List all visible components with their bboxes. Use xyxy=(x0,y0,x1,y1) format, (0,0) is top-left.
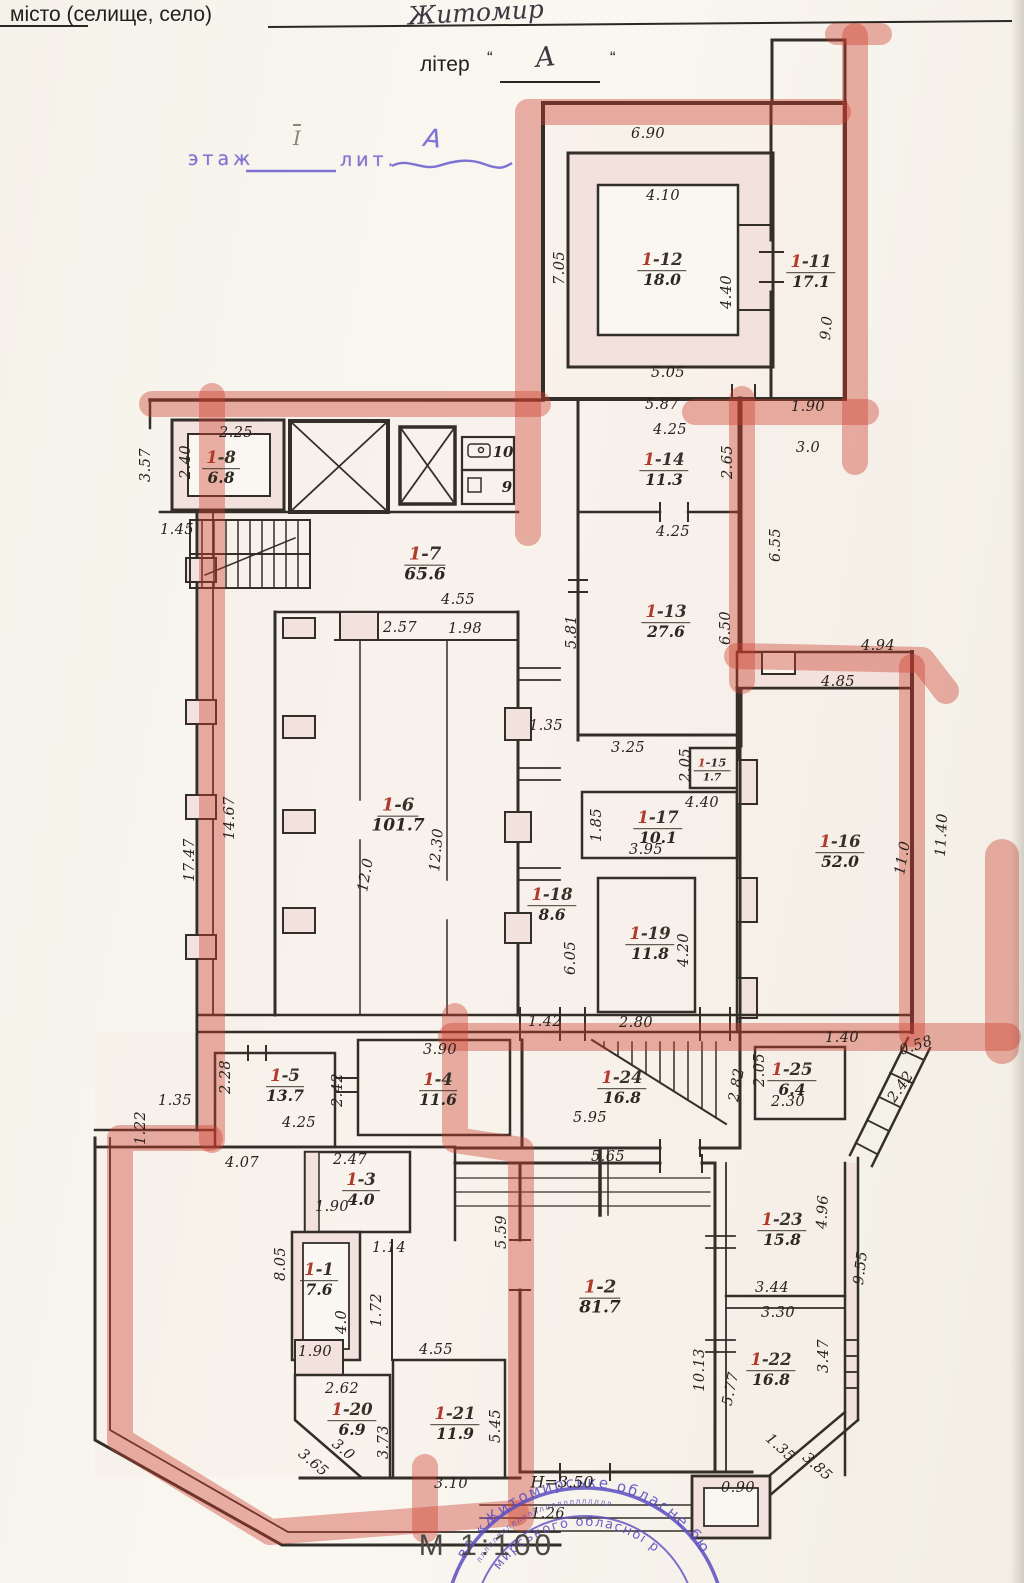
dim-label: 1.40 xyxy=(825,1030,859,1046)
dim-label: 10.13 xyxy=(692,1348,708,1392)
dim-label: 4.55 xyxy=(441,592,475,608)
liter-quote-open: “ xyxy=(487,48,493,68)
room-label-1-18: 1-188.6 xyxy=(527,887,576,923)
dim-label: 6.90 xyxy=(631,126,665,142)
dim-label: 4.85 xyxy=(821,674,855,690)
room-label-1-4: 1-411.6 xyxy=(419,1072,457,1108)
room-label-1-6: 1-6101.7 xyxy=(371,797,424,836)
room-label-1-14: 1-1411.3 xyxy=(639,452,688,488)
dim-label: 1.98 xyxy=(448,621,482,637)
dim-label: 2.62 xyxy=(325,1381,359,1397)
room-label-1-12: 1-1218.0 xyxy=(637,252,686,288)
dim-label: 2.30 xyxy=(771,1094,805,1110)
corner-stair-hatch xyxy=(850,1038,930,1166)
dim-label: 8.05 xyxy=(273,1247,289,1281)
dim-label: 4.20 xyxy=(676,933,692,967)
room-label-1-2: 1-281.7 xyxy=(579,1279,620,1318)
dim-label: 1.90 xyxy=(315,1199,349,1215)
room-label-1-23: 1-2315.8 xyxy=(757,1212,806,1248)
room-label-1-16: 1-1652.0 xyxy=(815,834,864,870)
room-label-1-24: 1-2416.8 xyxy=(597,1070,646,1106)
room-label-1-7: 1-765.6 xyxy=(404,546,445,585)
floor-stamp-label: этаж xyxy=(188,148,254,170)
dim-label: 4.55 xyxy=(419,1342,453,1358)
form-field-city-label: місто (селище, село) xyxy=(10,3,212,27)
dim-label: 3.95 xyxy=(629,842,663,858)
liter-label: літер xyxy=(420,53,470,77)
dim-label: 1.35 xyxy=(529,718,563,734)
liter-quote-close: “ xyxy=(610,48,616,68)
dim-label: 3.25 xyxy=(611,740,645,756)
dim-label: 4.40 xyxy=(685,795,719,811)
dim-label: 5.05 xyxy=(651,365,685,381)
room-label-1-25: 1-256.4 xyxy=(767,1062,816,1098)
cell-label-10: 10 xyxy=(493,443,514,461)
room-label-1-15: 1-151.7 xyxy=(694,753,731,782)
dim-label: 4.25 xyxy=(656,524,690,540)
dim-label: 1.35 xyxy=(158,1093,192,1109)
lit-stamp-label: лит. xyxy=(340,149,398,171)
dim-label: 6.50 xyxy=(718,611,734,645)
room-label-1-20: 1-206.9 xyxy=(327,1402,376,1438)
dim-label: 6.55 xyxy=(768,528,784,562)
room-label-1-8: 1-86.8 xyxy=(202,450,240,486)
scan-edge-shadow xyxy=(1010,0,1024,1583)
dim-label: 3.44 xyxy=(755,1280,789,1296)
dim-label: 5.95 xyxy=(573,1110,607,1126)
dim-label: 1.90 xyxy=(298,1344,332,1360)
dim-label: 1.90 xyxy=(791,399,825,415)
room-label-1-1: 1-17.6 xyxy=(300,1262,338,1298)
dim-label: 5.45 xyxy=(488,1409,504,1443)
dim-label: 4.10 xyxy=(646,188,680,204)
dim-label: 6.05 xyxy=(563,941,579,975)
dim-label: 3.90 xyxy=(423,1042,457,1058)
dim-label: 3.47 xyxy=(816,1339,832,1373)
dim-label: 1.85 xyxy=(589,808,605,842)
dim-label: 2.80 xyxy=(619,1015,653,1031)
room-label-1-17: 1-1710.1 xyxy=(633,810,682,846)
room-label-1-13: 1-1327.6 xyxy=(641,604,690,640)
scale-label: М 1:100 xyxy=(419,1529,555,1563)
scanned-floorplan-page: во «Житомирське обласне бю ллллллллллллл… xyxy=(0,0,1024,1583)
dim-label: 1.22 xyxy=(133,1111,149,1145)
dim-label: 4.96 xyxy=(814,1195,832,1230)
dim-label: 2.25 xyxy=(219,425,253,441)
room-label-1-22: 1-2216.8 xyxy=(746,1352,795,1388)
dim-label: 4.0 xyxy=(334,1310,350,1334)
dim-label: 7.05 xyxy=(552,251,568,285)
dim-label: 1.45 xyxy=(160,522,194,538)
dim-label: 14.67 xyxy=(222,796,238,840)
dim-label: 1.14 xyxy=(372,1240,406,1256)
room-label-1-5: 1-513.7 xyxy=(266,1068,304,1104)
dim-label: 0.90 xyxy=(721,1480,755,1496)
dim-label: 11.40 xyxy=(933,813,951,857)
dim-label: 2.57 xyxy=(383,620,417,636)
dim-label: 1.26 xyxy=(531,1506,565,1522)
dim-label: 2.05 xyxy=(752,1053,768,1087)
dim-label: 5.81 xyxy=(564,615,580,649)
dim-label: 4.25 xyxy=(282,1115,316,1131)
dim-label: 2.40 xyxy=(178,445,194,479)
dim-label: 2.47 xyxy=(333,1152,367,1168)
floor-number-handwritten: І xyxy=(293,126,301,150)
dim-label: 2.05 xyxy=(678,748,694,782)
dim-label: 3.57 xyxy=(138,448,154,482)
room-label-1-19: 1-1911.8 xyxy=(625,926,674,962)
lit-value-handwritten: А xyxy=(423,123,447,154)
dim-label: 4.25 xyxy=(653,422,687,438)
liter-handwritten: А xyxy=(533,41,557,74)
dim-label: 3.10 xyxy=(434,1476,468,1492)
dim-label: 4.07 xyxy=(225,1155,259,1171)
dim-label: 4.94 xyxy=(861,638,895,654)
height-note: Н=3.50 xyxy=(531,1473,594,1492)
dim-label: 1.72 xyxy=(369,1293,385,1327)
dim-label: 3.73 xyxy=(376,1425,392,1459)
dim-label: 3.0 xyxy=(796,440,820,456)
dim-label: 5.65 xyxy=(591,1149,625,1165)
room-label-1-21: 1-2111.9 xyxy=(430,1406,479,1442)
dim-label: 3.30 xyxy=(761,1305,795,1321)
dim-label: 2.42 xyxy=(330,1073,346,1107)
cell-label-9: 9 xyxy=(502,478,512,496)
dim-label: 4.40 xyxy=(719,275,735,309)
dim-label: 2.28 xyxy=(218,1060,234,1094)
dim-label: 5.59 xyxy=(494,1215,510,1249)
floorplan-drawing: во «Житомирське обласне бю ллллллллллллл… xyxy=(0,0,1024,1583)
dim-label: 5.87 xyxy=(645,397,679,413)
dim-label: 1.42 xyxy=(528,1014,562,1030)
room-label-1-11: 1-1117.1 xyxy=(786,254,835,290)
dim-label: 17.47 xyxy=(182,838,198,882)
dim-label: 2.65 xyxy=(720,445,736,479)
dim-label: 9.0 xyxy=(818,315,836,341)
